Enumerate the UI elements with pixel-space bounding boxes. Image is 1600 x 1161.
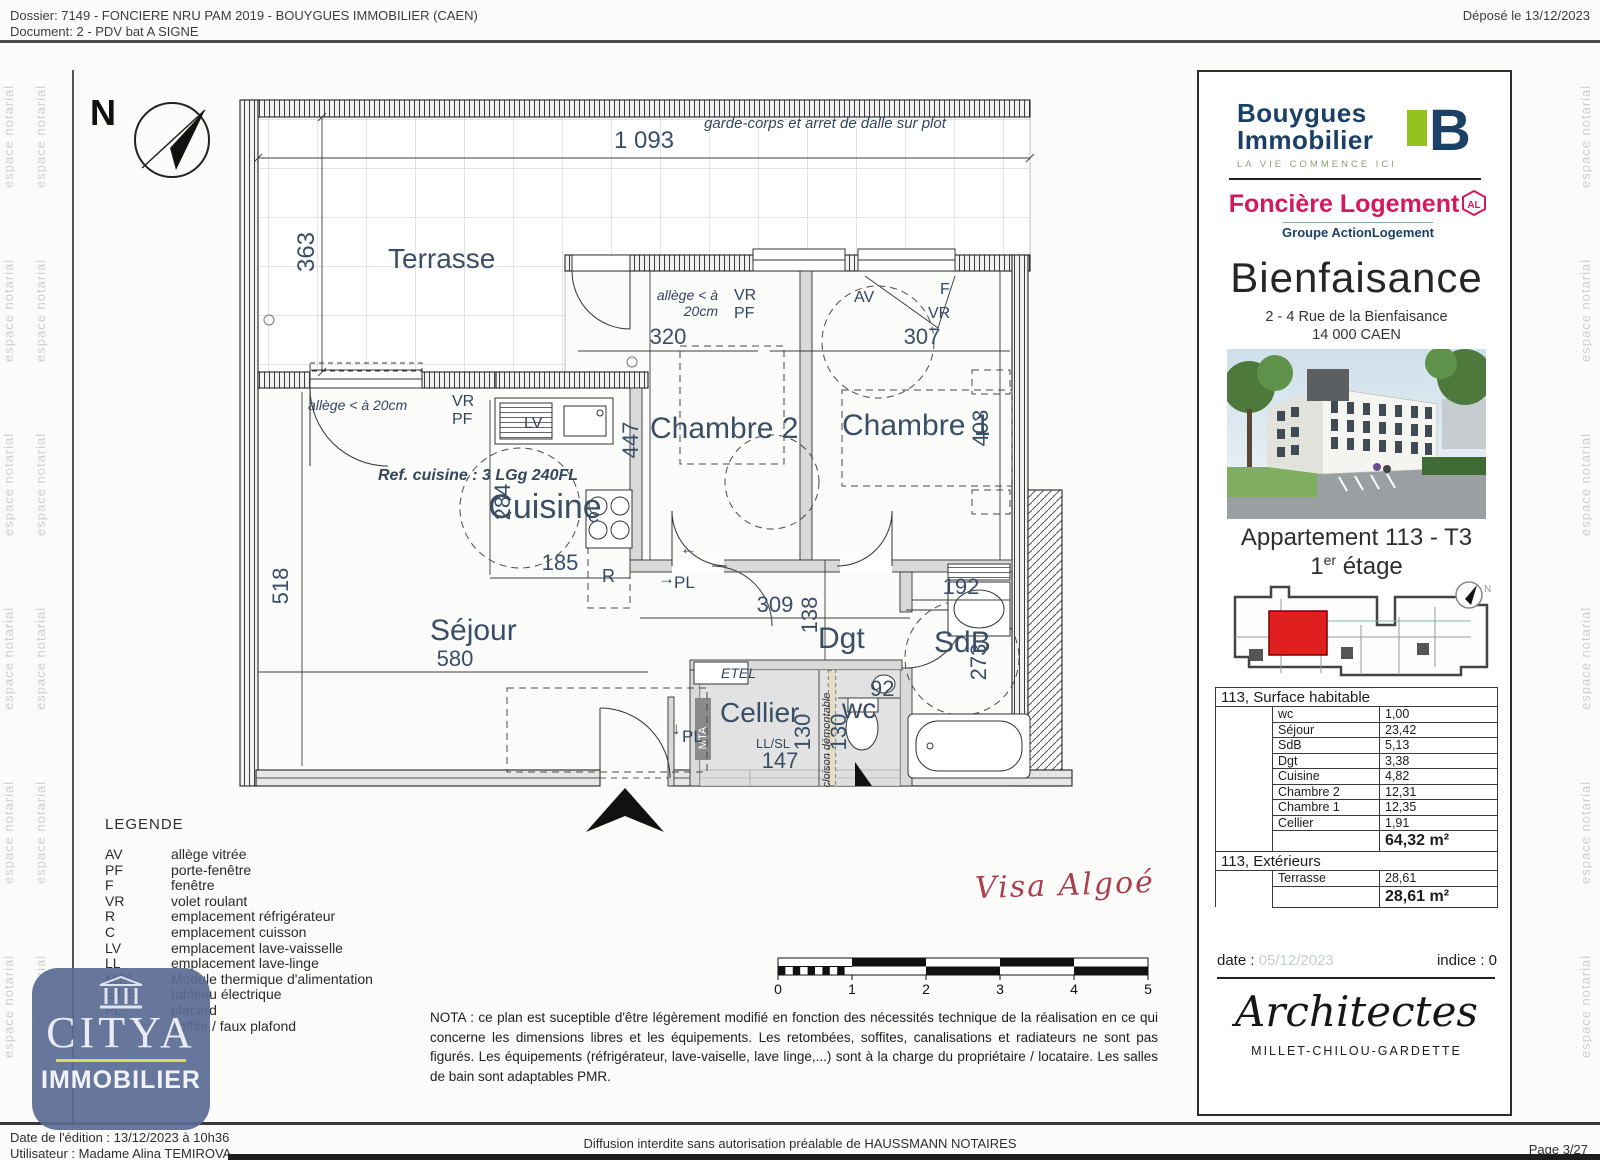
watermark-text: espace notarial [33, 234, 48, 362]
vr-ch1: VR [928, 305, 950, 322]
dim-147: 147 [762, 748, 799, 773]
room-cellier: Cellier [720, 697, 799, 728]
dim-130a: 130 [790, 714, 815, 751]
table-total-row: 64,32 m² [1216, 831, 1498, 852]
c-label: C [588, 509, 599, 526]
etel-label: ETEL [721, 665, 756, 681]
dim-273: 273 [966, 644, 991, 681]
watermark-column-right: espace notarialespace notarialespace not… [1578, 60, 1593, 1058]
legend-item: Cemplacement cuisson [105, 925, 373, 941]
row-value: 23,42 [1380, 722, 1498, 738]
footer-rule [0, 1122, 1600, 1125]
watermark-text: espace notarial [1, 408, 16, 536]
fonciere-logo: Foncière Logement AL Groupe ActionLogeme… [1215, 190, 1501, 240]
table-row: Chambre 212,31 [1216, 784, 1498, 800]
room-sejour: Séjour [430, 614, 517, 647]
visa-stamp: Visa Algoé [974, 865, 1155, 906]
table-row: Dgt3,38 [1216, 753, 1498, 769]
header-dossier: Dossier: 7149 - FONCIERE NRU PAM 2019 - … [10, 8, 478, 23]
pl-hall: PL [674, 573, 695, 592]
legend-item: Remplacement réfrigérateur [105, 909, 373, 925]
hab-header: 113, Surface habitable [1216, 688, 1498, 707]
footer-diffusion: Diffusion interdite sans autorisation pr… [400, 1136, 1200, 1151]
legend-item: AVallège vitrée [105, 847, 373, 863]
legend-item: LVemplacement lave-vaisselle [105, 941, 373, 957]
table-row: Cuisine4,82 [1216, 769, 1498, 785]
r-label: R [602, 566, 615, 586]
table-row: Séjour23,42 [1216, 722, 1498, 738]
legend-item: PFporte-fenêtre [105, 863, 373, 879]
room-wc: wc [841, 693, 876, 724]
legend-abbr: VR [105, 894, 171, 910]
row-value: 4,82 [1380, 769, 1498, 785]
floor-locator: N [1221, 577, 1491, 685]
dim-518: 518 [268, 568, 293, 605]
address-line1: 2 - 4 Rue de la Bienfaisance [1199, 308, 1514, 326]
table-total-row: 28,61 m² [1216, 886, 1498, 907]
legend-label: emplacement cuisson [171, 925, 306, 941]
citya-name: CITYA [32, 1011, 210, 1055]
watermark-text: espace notarial [33, 582, 48, 710]
ext-total: 28,61 m² [1380, 886, 1498, 907]
nota-text: NOTA : ce plan est suceptible d'être lég… [430, 1008, 1158, 1086]
citya-columns-icon [98, 976, 144, 1010]
hab-total: 64,32 m² [1380, 831, 1498, 852]
sidebar-panel: Bouygues Immobilier LA VIE COMMENCE ICI … [1197, 70, 1512, 1116]
pf-ch2: PF [734, 305, 755, 322]
legend-abbr: AV [105, 847, 171, 863]
room-terrasse: Terrasse [388, 243, 495, 274]
av-ch1: AV [854, 289, 874, 306]
entry-arrow [586, 788, 664, 832]
dim-309: 309 [757, 592, 794, 617]
compass-n: N [90, 92, 116, 133]
apartment-title: Appartement 113 - T3 [1199, 524, 1514, 552]
footer-user: Utilisateur : Madame Alina TEMIROVA [10, 1146, 231, 1161]
watermark-text: espace notarial [1, 930, 16, 1058]
scale-tick: 4 [1070, 981, 1078, 997]
legend-abbr: R [105, 909, 171, 925]
bouygues-word2: Immobilier [1237, 127, 1397, 154]
fonciere-name: Foncière Logement [1229, 190, 1460, 219]
dim-1093: 1 093 [614, 127, 674, 154]
scale-tick: 5 [1144, 981, 1152, 997]
legend-label: emplacement lave-vaisselle [171, 941, 343, 957]
table-row: SdB5,13 [1216, 738, 1498, 754]
floor-sup: er [1324, 552, 1336, 568]
row-label: Terrasse [1273, 871, 1380, 887]
lv-label: LV [524, 415, 543, 432]
garde-corps-note: garde-corps et arret de dalle sur plot [704, 115, 947, 132]
pl-entry: PL [682, 727, 703, 746]
footer-edition: Date de l'édition : 13/12/2023 à 10h36 [10, 1130, 229, 1145]
dim-185: 185 [542, 550, 579, 575]
row-label: SdB [1273, 738, 1380, 754]
citya-underline [56, 1059, 186, 1062]
pl-down-arrow: ↓ [672, 719, 681, 738]
vr-sejour: VR [452, 393, 474, 410]
table-section-header: 113, Extérieurs [1216, 852, 1498, 871]
scale-tick: 2 [922, 981, 930, 997]
row-label: Chambre 2 [1273, 784, 1380, 800]
locator-unit-highlight [1269, 611, 1327, 655]
scale-tick: 3 [996, 981, 1004, 997]
table-row: wc1,00 [1216, 707, 1498, 723]
footer-bottom-bar [228, 1154, 1600, 1160]
locator-north: N [1484, 584, 1491, 595]
svg-text:B: B [1429, 100, 1469, 162]
ref-cuisine: Ref. cuisine : 3 LGg 240FL [378, 467, 578, 484]
legend-label: allège vitrée [171, 847, 247, 863]
fonciere-underline [1283, 222, 1433, 223]
sidebar-divider [1217, 977, 1495, 979]
scale-tick: 0 [774, 981, 782, 997]
room-chambre2: Chambre 2 [650, 412, 798, 445]
surface-table: 113, Surface habitable wc1,00 Séjour23,4… [1215, 687, 1498, 908]
floor-word: étage [1336, 553, 1403, 580]
allege-sejour: allège < à 20cm [308, 397, 408, 413]
legend-abbr: F [105, 878, 171, 894]
al-hexagon-icon: AL [1461, 190, 1487, 216]
scale-bar: 0 1 2 3 4 5 [770, 952, 1170, 1000]
watermark-text: espace notarial [33, 756, 48, 884]
floor-number: 1 [1310, 553, 1323, 580]
north-compass: N [90, 92, 209, 177]
row-value: 28,61 [1380, 871, 1498, 887]
svg-text:AL: AL [1468, 200, 1481, 211]
building-photo [1227, 349, 1486, 519]
row-value: 5,13 [1380, 738, 1498, 754]
watermark-text: espace notarial [33, 60, 48, 188]
dim-363: 363 [293, 232, 320, 272]
pf-sejour: PF [452, 411, 473, 428]
row-label: Séjour [1273, 722, 1380, 738]
arrow-left-pl: ← [680, 539, 697, 558]
room-dgt: Dgt [818, 622, 865, 655]
legend-item: VRvolet roulant [105, 894, 373, 910]
bouygues-tagline: LA VIE COMMENCE ICI [1237, 159, 1397, 170]
watermark-text: espace notarial [1, 582, 16, 710]
architects-script: Architectes [1199, 987, 1514, 1036]
watermark-text: espace notarial [1578, 582, 1593, 710]
table-row: Chambre 112,35 [1216, 800, 1498, 816]
sidebar-divider [1229, 178, 1481, 180]
row-label: Cellier [1273, 815, 1380, 831]
date-value: 05/12/2023 [1259, 952, 1334, 969]
legend-abbr: PF [105, 863, 171, 879]
row-label: Dgt [1273, 753, 1380, 769]
dim-403: 403 [968, 410, 993, 447]
dim-320: 320 [650, 324, 687, 349]
watermark-text: espace notarial [1578, 930, 1593, 1058]
header-deposited: Déposé le 13/12/2023 [1463, 8, 1590, 23]
vr-ch2: VR [734, 287, 756, 304]
allege-ch2-b: 20cm [683, 303, 719, 319]
legend-item: Ffenêtre [105, 878, 373, 894]
row-value: 12,31 [1380, 784, 1498, 800]
legend-label: emplacement réfrigérateur [171, 909, 335, 925]
bouygues-word1: Bouygues [1237, 100, 1397, 127]
watermark-text: espace notarial [1578, 234, 1593, 362]
table-row: Cellier1,91 [1216, 815, 1498, 831]
row-value: 12,35 [1380, 800, 1498, 816]
scale-tick: 1 [848, 981, 856, 997]
row-value: 1,00 [1380, 707, 1498, 723]
watermark-text: espace notarial [1578, 408, 1593, 536]
legend-abbr: C [105, 925, 171, 941]
table-row: Terrasse28,61 [1216, 871, 1498, 887]
table-section-header: 113, Surface habitable [1216, 688, 1498, 707]
row-value: 1,91 [1380, 815, 1498, 831]
watermark-text: espace notarial [1, 60, 16, 188]
legend-label: volet roulant [171, 894, 247, 910]
legend-title: LEGENDE [105, 816, 373, 833]
watermark-text: espace notarial [1578, 756, 1593, 884]
row-label: Chambre 1 [1273, 800, 1380, 816]
pl-arrow: → [658, 569, 675, 588]
dim-307: 307 [904, 324, 941, 349]
f-ch1: F [940, 281, 950, 298]
date-row: date : 05/12/2023 indice : 0 [1217, 952, 1497, 969]
project-address: 2 - 4 Rue de la Bienfaisance 14 000 CAEN [1199, 308, 1514, 344]
watermark-column-left1: espace notarialespace notarialespace not… [1, 60, 16, 1058]
ext-header: 113, Extérieurs [1216, 852, 1498, 871]
legend-label: porte-fenêtre [171, 863, 251, 879]
project-title: Bienfaisance [1199, 254, 1514, 302]
watermark-column-left2: espace notarialespace notarialespace not… [33, 60, 48, 1058]
architects-firm: MILLET-CHILOU-GARDETTE [1199, 1044, 1514, 1058]
groupe-actionlogement: Groupe ActionLogement [1215, 225, 1501, 240]
date-label: date : [1217, 952, 1255, 969]
dim-447: 447 [618, 422, 643, 459]
legend-label: fenêtre [171, 878, 215, 894]
watermark-text: espace notarial [33, 408, 48, 536]
row-label: wc [1273, 707, 1380, 723]
watermark-text: espace notarial [1, 234, 16, 362]
allege-ch2-a: allège < à [657, 287, 718, 303]
watermark-text: espace notarial [1, 756, 16, 884]
address-line2: 14 000 CAEN [1199, 326, 1514, 344]
row-label: Cuisine [1273, 769, 1380, 785]
header-rule [0, 40, 1600, 43]
bouygues-logo: Bouygues Immobilier LA VIE COMMENCE ICI … [1237, 100, 1469, 170]
legend-abbr: LV [105, 941, 171, 957]
dim-284: 284 [490, 484, 515, 521]
header-document: Document: 2 - PDV bat A SIGNE [10, 24, 199, 39]
indice-label: indice : 0 [1437, 952, 1497, 969]
dim-192: 192 [943, 574, 980, 599]
watermark-text: espace notarial [1578, 60, 1593, 188]
citya-watermark: CITYA IMMOBILIER [32, 968, 210, 1130]
row-value: 3,38 [1380, 753, 1498, 769]
dim-580: 580 [437, 646, 474, 671]
bouygues-b-icon: B [1405, 100, 1469, 162]
citya-sub: IMMOBILIER [32, 1066, 210, 1095]
